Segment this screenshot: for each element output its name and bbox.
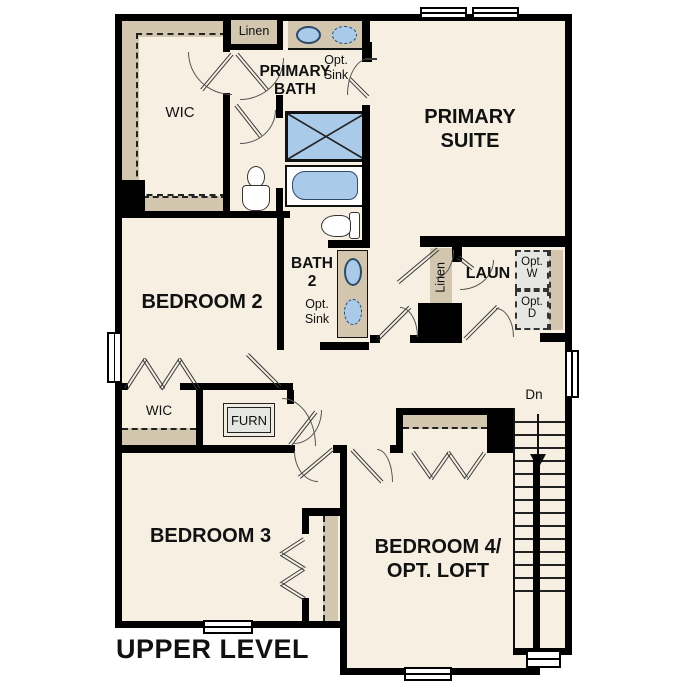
wall (333, 445, 347, 453)
wall (302, 516, 309, 534)
room-label-wic-upper: WIC (150, 104, 210, 122)
toilet-bowl-bath (321, 215, 351, 237)
furnace-box-inner: FURN (227, 407, 271, 433)
wic2-shelf (122, 428, 196, 446)
window (203, 620, 253, 634)
furnace-label: FURN (231, 413, 267, 428)
opt-washer-box: Opt.W (515, 250, 549, 290)
wall (320, 342, 369, 350)
label-linen-laundry: Linen (434, 250, 449, 304)
opt-dryer-box: Opt.D (515, 290, 549, 330)
page-title: UPPER LEVEL (116, 634, 376, 666)
primary-opt-sink (332, 26, 357, 44)
wall (533, 455, 540, 675)
wall (487, 408, 513, 453)
stairs-edge (513, 408, 515, 650)
window (526, 650, 561, 668)
toilet-base-wc (242, 185, 270, 211)
wall (276, 188, 283, 211)
laundry-side-shelf (549, 250, 563, 330)
primary-sink (296, 26, 321, 44)
room-label-bedroom3: BEDROOM 3 (128, 525, 293, 549)
room-label-bedroom4: BEDROOM 4/OPT. LOFT (352, 536, 524, 583)
shower-fixture (285, 111, 367, 162)
window (565, 350, 579, 398)
wall (302, 598, 309, 621)
wall (223, 93, 230, 218)
wall (196, 390, 203, 452)
wall (540, 333, 572, 342)
label-opt-sink-bath2: Opt.Sink (291, 297, 343, 327)
bathtub-basin (292, 171, 358, 200)
wall (418, 303, 462, 343)
room-label-laundry: LAUN (458, 265, 518, 284)
wic-shelf-bottom (143, 196, 227, 211)
furnace-box: FURN (223, 403, 275, 437)
wall (328, 240, 369, 248)
room-label-bedroom2: BEDROOM 2 (123, 291, 281, 315)
wall (115, 180, 145, 211)
room-label-wic-lower: WIC (131, 403, 187, 419)
wall (302, 508, 347, 516)
floor-plan: Opt.W Opt.D FURN (0, 0, 687, 687)
window (404, 667, 452, 681)
wall (362, 105, 370, 248)
label-opt-sink-primary: Opt.Sink (310, 53, 362, 83)
room-label-bath2: BATH2 (284, 255, 340, 292)
bedroom3-closet-shelf (323, 516, 338, 621)
wall (420, 236, 565, 247)
wall (277, 218, 284, 350)
window (420, 7, 467, 19)
wall (115, 14, 122, 628)
bath2-opt-sink (344, 299, 362, 325)
label-linen-bath: Linen (227, 24, 281, 39)
bedroom4-closet-shelf (403, 413, 487, 429)
label-stairs-down: Dn (518, 387, 550, 403)
bath2-sink (344, 258, 362, 286)
stairs-down-arrow-shaft (537, 414, 539, 456)
wall (115, 445, 295, 453)
window (472, 7, 519, 19)
room-label-primary-suite: PRIMARYSUITE (390, 106, 550, 153)
wall (115, 211, 290, 218)
opt-sink-leader (366, 58, 377, 60)
window (107, 332, 122, 383)
